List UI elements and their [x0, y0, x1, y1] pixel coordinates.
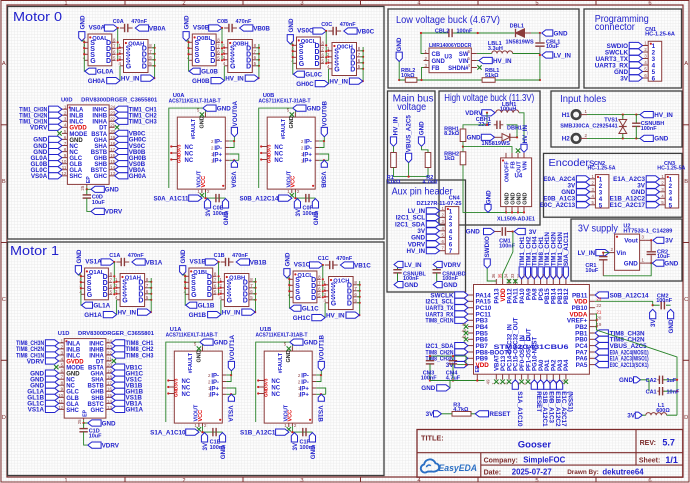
svg-text:DBL1: DBL1 [510, 23, 524, 29]
svg-text:S1A_A1C10: S1A_A1C10 [516, 391, 523, 427]
svg-text:VS0B: VS0B [193, 24, 210, 31]
svg-text:IP+: IP+ [300, 386, 310, 392]
svg-text:H2: H2 [562, 136, 571, 143]
svg-text:100nF: 100nF [210, 445, 227, 451]
svg-text:G: G [87, 292, 93, 299]
svg-text:GND: GND [102, 420, 116, 427]
svg-text:GND: GND [654, 136, 668, 143]
svg-text:#FAULT: #FAULT [281, 118, 287, 139]
svg-text:C1B: C1B [214, 253, 225, 259]
svg-text:GHB: GHB [91, 390, 105, 396]
svg-text:#FAULT: #FAULT [278, 352, 284, 373]
svg-text:dekutree64: dekutree64 [602, 467, 644, 476]
svg-text:voltage: voltage [397, 101, 426, 113]
svg-text:G: G [195, 58, 201, 65]
svg-text:11: 11 [62, 165, 67, 170]
svg-text:25: 25 [80, 185, 85, 190]
svg-text:High voltage buck (11.3V): High voltage buck (11.3V) [444, 92, 534, 104]
svg-text:GH1B: GH1B [189, 312, 207, 319]
svg-text:DT: DT [96, 359, 104, 365]
svg-text:ACS711KEXLT-31AB-T: ACS711KEXLT-31AB-T [169, 99, 221, 105]
svg-text:2: 2 [182, 1, 185, 7]
svg-text:VS1B: VS1B [317, 406, 324, 423]
svg-text:HV_IN: HV_IN [493, 58, 512, 65]
svg-text:Vout: Vout [624, 238, 638, 245]
svg-text:Motor 1: Motor 1 [10, 244, 59, 258]
svg-text:VS0B: VS0B [320, 172, 327, 189]
svg-text:100nF: 100nF [403, 276, 420, 282]
svg-text:E0C_A2C13: E0C_A2C13 [540, 202, 576, 209]
svg-text:INHB: INHB [89, 347, 104, 353]
svg-text:GND: GND [421, 385, 435, 392]
svg-text:S1B_A12C1: S1B_A12C1 [240, 429, 276, 436]
svg-text:GND: GND [199, 116, 205, 128]
svg-text:5: 5 [599, 202, 603, 209]
svg-text:D: D [243, 297, 248, 304]
svg-text:Gooser: Gooser [518, 439, 552, 450]
svg-text:EasyEDA: EasyEDA [439, 463, 478, 473]
svg-text:470nF: 470nF [336, 256, 353, 262]
svg-text:IP-: IP- [301, 380, 309, 386]
svg-text:10uF: 10uF [546, 44, 559, 50]
svg-text:GND: GND [289, 116, 295, 128]
svg-text:GND: GND [76, 249, 83, 263]
svg-text:C1A: C1A [109, 253, 120, 259]
svg-text:5: 5 [535, 1, 538, 7]
svg-text:IP+: IP+ [303, 152, 313, 158]
svg-text:VS0C: VS0C [297, 27, 314, 34]
svg-text:S0A_A1C11: S0A_A1C11 [153, 195, 189, 202]
svg-text:IP-: IP- [304, 139, 312, 145]
svg-text:VCC: VCC [201, 176, 207, 188]
svg-text:ACS711KEXLT-31AB-T: ACS711KEXLT-31AB-T [166, 333, 218, 339]
svg-text:S1A_A1C10: S1A_A1C10 [150, 429, 186, 436]
svg-text:GND: GND [105, 187, 119, 194]
svg-text:VDRV: VDRV [443, 262, 461, 269]
svg-text:VS0A: VS0A [89, 24, 106, 31]
svg-text:GH0A: GH0A [129, 173, 147, 180]
svg-text:GND: GND [486, 190, 493, 204]
svg-text:100nF: 100nF [300, 445, 317, 451]
svg-text:VDRV: VDRV [30, 125, 48, 132]
svg-text:GH1A: GH1A [126, 407, 144, 414]
svg-text:FB: FB [432, 66, 441, 72]
svg-text:U0D: U0D [61, 97, 73, 103]
svg-text:GND: GND [214, 339, 228, 346]
svg-text:3.3uH: 3.3uH [488, 46, 503, 52]
svg-text:GND: GND [288, 18, 295, 32]
svg-text:GHA: GHA [91, 372, 105, 378]
svg-text:E0C_A2C13(SCK1): E0C_A2C13(SCK1) [610, 362, 649, 369]
svg-text:D: D [103, 292, 108, 299]
svg-text:VB1C: VB1C [354, 262, 371, 269]
svg-text:VB1A: VB1A [146, 259, 163, 266]
svg-text:36: 36 [491, 273, 496, 278]
svg-text:10nF: 10nF [667, 389, 680, 395]
svg-text:VS1A: VS1A [227, 406, 234, 423]
svg-text:NC: NC [274, 158, 283, 164]
svg-text:6: 6 [648, 478, 651, 483]
svg-text:connector: connector [595, 21, 635, 33]
svg-text:VB0B: VB0B [253, 25, 270, 32]
svg-text:1N5819WS: 1N5819WS [506, 39, 534, 45]
svg-text:NC: NC [182, 385, 191, 391]
svg-text:D: D [210, 58, 215, 65]
svg-text:10uF: 10uF [585, 268, 598, 274]
svg-text:1: 1 [64, 1, 67, 7]
svg-text:470nF: 470nF [128, 253, 145, 259]
svg-text:HV_IN: HV_IN [121, 75, 140, 82]
svg-text:GND: GND [522, 193, 528, 205]
svg-text:GL1B: GL1B [198, 303, 215, 310]
svg-text:EP: EP [86, 176, 92, 183]
svg-text:D: D [142, 63, 147, 70]
svg-text:LV_IN: LV_IN [578, 250, 596, 257]
svg-text:3: 3 [300, 478, 303, 483]
svg-text:470nF: 470nF [232, 253, 249, 259]
svg-text:10uF: 10uF [89, 434, 102, 440]
svg-text:HV_IN: HV_IN [654, 112, 673, 119]
svg-text:INHB: INHB [92, 114, 107, 120]
svg-text:GL1C: GL1C [302, 306, 319, 313]
svg-text:G: G [230, 63, 236, 70]
svg-text:1/1: 1/1 [665, 455, 678, 465]
svg-text:GND: GND [624, 260, 638, 267]
svg-text:SimpleFOC: SimpleFOC [523, 456, 565, 465]
svg-text:Input holes: Input holes [560, 93, 606, 105]
svg-text:NC: NC [271, 392, 280, 398]
svg-text:D: D [311, 295, 316, 302]
svg-text:Low voltage buck (4.67V): Low voltage buck (4.67V) [396, 14, 500, 26]
svg-text:3V: 3V [665, 238, 674, 245]
svg-text:C0C: C0C [321, 22, 332, 28]
svg-text:33: 33 [510, 273, 515, 278]
svg-text:GND: GND [286, 350, 292, 362]
svg-text:1: 1 [64, 478, 67, 483]
svg-text:NC: NC [185, 145, 194, 151]
svg-text:Drawn By:: Drawn By: [567, 469, 599, 476]
svg-text:VS1A: VS1A [28, 407, 45, 414]
svg-text:GL0C: GL0C [305, 72, 322, 79]
svg-text:IP-: IP- [211, 373, 219, 379]
svg-text:TITLE:: TITLE: [421, 434, 444, 443]
svg-text:10uF: 10uF [657, 254, 670, 260]
svg-text:DZ127R-11-07-25: DZ127R-11-07-25 [417, 201, 462, 207]
svg-text:#FAULT: #FAULT [188, 352, 194, 373]
svg-text:35: 35 [497, 273, 502, 278]
svg-text:GVDD: GVDD [69, 126, 87, 132]
svg-text:3: 3 [300, 1, 303, 7]
svg-text:TIM8_CH3: TIM8_CH3 [126, 352, 154, 359]
svg-text:G: G [299, 61, 305, 68]
svg-text:GND3V3: GND3V3 [177, 144, 182, 163]
svg-text:U1D: U1D [58, 331, 70, 337]
svg-text:NC: NC [185, 151, 194, 157]
svg-text:G: G [126, 63, 132, 70]
svg-text:HV_IN: HV_IN [407, 248, 426, 255]
svg-text:EP: EP [475, 365, 481, 372]
svg-text:S0B_A12C14: S0B_A12C14 [240, 195, 279, 202]
svg-text:VOUT1A: VOUT1A [229, 335, 236, 361]
svg-text:ACS711KEXLT-31AB-T: ACS711KEXLT-31AB-T [259, 99, 311, 105]
svg-text:GLC: GLC [66, 390, 79, 396]
svg-text:D: D [207, 292, 212, 299]
svg-text:6: 6 [652, 76, 656, 83]
svg-text:A: A [2, 61, 6, 67]
svg-text:GND3V3: GND3V3 [264, 378, 269, 397]
svg-text:G: G [331, 300, 337, 307]
svg-text:SWDIO: SWDIO [484, 236, 491, 257]
svg-text:GND: GND [619, 377, 633, 384]
svg-text:GND: GND [196, 350, 202, 362]
svg-text:HV_IN: HV_IN [225, 75, 244, 82]
svg-text:5: 5 [669, 202, 673, 209]
svg-text:100nF: 100nF [303, 211, 320, 217]
svg-text:GH0C: GH0C [296, 81, 314, 88]
svg-text:NC: NC [274, 151, 283, 157]
svg-text:GND: GND [668, 319, 675, 333]
svg-text:VBUS_A2C5: VBUS_A2C5 [406, 115, 413, 153]
svg-text:DRV8300DRGER_C3655801: DRV8300DRGER_C3655801 [78, 331, 155, 337]
svg-text:GLC: GLC [69, 156, 82, 162]
svg-text:VDRV: VDRV [465, 110, 483, 117]
svg-text:3V: 3V [529, 229, 538, 236]
svg-text:25: 25 [77, 419, 82, 424]
svg-text:CB: CB [432, 52, 441, 58]
svg-text:VDRV: VDRV [27, 358, 45, 365]
svg-text:G: G [122, 297, 128, 304]
svg-text:HV_IN: HV_IN [522, 125, 529, 144]
svg-text:GND: GND [467, 135, 481, 142]
svg-text:VS1C: VS1C [294, 261, 311, 268]
svg-text:22: 22 [596, 303, 601, 308]
svg-text:B: B [684, 179, 688, 185]
svg-text:GND3V3: GND3V3 [267, 144, 272, 163]
svg-text:1kΩ: 1kΩ [444, 156, 455, 162]
svg-text:470nF: 470nF [131, 19, 148, 25]
svg-text:IP+: IP+ [303, 159, 313, 165]
svg-text:GND3V3: GND3V3 [174, 378, 179, 397]
svg-text:G: G [227, 297, 233, 304]
svg-text:VB0C: VB0C [357, 28, 374, 35]
svg-text:C0A: C0A [113, 19, 124, 25]
svg-text:GND: GND [466, 229, 480, 236]
svg-text:GL0B: GL0B [201, 69, 218, 76]
svg-text:G: G [90, 58, 96, 65]
svg-text:GND: GND [184, 15, 191, 29]
svg-text:Motor 0: Motor 0 [13, 10, 62, 24]
svg-text:VDRV: VDRV [102, 442, 120, 449]
svg-text:G: G [334, 66, 340, 73]
svg-text:NC: NC [69, 144, 78, 150]
svg-text:VS0A: VS0A [230, 172, 237, 189]
svg-text:NC: NC [271, 379, 280, 385]
svg-text:GL0A: GL0A [97, 69, 114, 76]
svg-text:INLB: INLB [69, 114, 84, 120]
svg-text:GND: GND [419, 121, 426, 135]
svg-text:470nF: 470nF [236, 19, 253, 25]
svg-text:100nF: 100nF [641, 126, 658, 132]
svg-text:U3: U3 [444, 54, 452, 60]
svg-text:HC-1.25-6A: HC-1.25-6A [645, 32, 675, 38]
svg-text:470nF: 470nF [340, 22, 357, 28]
svg-text:10kΩ: 10kΩ [401, 73, 415, 79]
svg-text:NC: NC [182, 392, 191, 398]
svg-text:(NSS1): (NSS1) [567, 391, 574, 412]
svg-text:3V: 3V [650, 318, 657, 327]
svg-text:GH0B: GH0B [192, 78, 210, 85]
svg-text:GVDD: GVDD [66, 359, 84, 365]
svg-text:GND: GND [307, 105, 321, 112]
svg-text:HC-1.25-5A: HC-1.25-5A [588, 166, 616, 172]
svg-text:INLB: INLB [66, 347, 81, 353]
svg-text:B: B [2, 179, 6, 185]
svg-text:IP-: IP- [214, 139, 222, 145]
svg-text:GND: GND [79, 15, 86, 29]
svg-text:C1C: C1C [318, 256, 329, 262]
svg-text:G: G [295, 295, 301, 302]
svg-text:IP+: IP+ [213, 152, 223, 158]
svg-text:HV_IN: HV_IN [393, 116, 400, 135]
svg-text:D: D [2, 415, 6, 421]
svg-text:100nF: 100nF [457, 28, 474, 34]
svg-text:TIM8_CH1N: TIM8_CH1N [426, 318, 454, 325]
svg-text:GH1A: GH1A [84, 312, 102, 319]
svg-text:6: 6 [648, 1, 651, 7]
svg-text:GND: GND [396, 37, 403, 51]
svg-text:S1B_A12C1: S1B_A12C1 [541, 391, 548, 427]
svg-text:3V: 3V [202, 442, 209, 451]
svg-text:VS0A: VS0A [31, 173, 48, 180]
svg-text:IP+: IP+ [213, 159, 223, 165]
svg-text:100nF: 100nF [442, 276, 459, 282]
svg-text:GND: GND [664, 261, 678, 268]
svg-text:HT7533-1_C14289: HT7533-1_C14289 [623, 228, 672, 234]
svg-text:A: A [684, 61, 688, 67]
svg-text:VOUT0B: VOUT0B [322, 101, 329, 127]
svg-text:NC: NC [66, 384, 75, 390]
svg-text:100nF: 100nF [213, 211, 230, 217]
svg-text:DRV8300DRGER_C3655801: DRV8300DRGER_C3655801 [81, 97, 158, 103]
svg-text:3V supply: 3V supply [578, 222, 619, 234]
svg-text:S0B_A12C14: S0B_A12C14 [610, 292, 649, 299]
svg-text:IP-: IP- [214, 146, 222, 152]
svg-text:GHB: GHB [94, 156, 108, 162]
svg-text:RESET: RESET [489, 411, 510, 418]
svg-text:D: D [350, 66, 355, 73]
svg-text:GND: GND [180, 249, 187, 263]
svg-text:3V: 3V [295, 208, 302, 217]
svg-text:VS1B: VS1B [190, 258, 207, 265]
svg-text:3V: 3V [627, 413, 636, 420]
svg-text:CA1: CA1 [646, 389, 657, 395]
svg-text:DT: DT [99, 126, 107, 132]
svg-text:11: 11 [59, 399, 64, 404]
svg-text:HC-1.25-5A: HC-1.25-5A [657, 166, 685, 172]
svg-text:IP-: IP- [304, 146, 312, 152]
svg-text:GHA: GHA [94, 138, 108, 144]
svg-text:GND: GND [66, 372, 80, 378]
svg-text:GHC: GHC [91, 408, 105, 414]
svg-text:IP-: IP- [211, 380, 219, 386]
svg-text:VOUT1B: VOUT1B [319, 335, 326, 361]
svg-text:GND: GND [554, 30, 568, 37]
svg-text:D: D [347, 300, 352, 307]
svg-text:HV_IN: HV_IN [222, 309, 241, 316]
svg-text:VIN: VIN [522, 161, 528, 170]
svg-text:GND: GND [304, 339, 318, 346]
svg-text:2025-07-27: 2025-07-27 [512, 468, 552, 477]
svg-text:XL1509-ADJE1: XL1509-ADJE1 [497, 216, 536, 222]
svg-text:PA4: PA4 [563, 359, 570, 371]
svg-text:HV_IN: HV_IN [118, 309, 137, 316]
svg-text:5: 5 [535, 478, 538, 483]
svg-text:VB0A: VB0A [149, 25, 166, 32]
svg-text:REV:: REV: [640, 440, 656, 447]
svg-text:H1: H1 [562, 112, 571, 119]
svg-text:EP: EP [83, 409, 89, 416]
svg-text:GND: GND [217, 105, 231, 112]
svg-text:C: C [684, 297, 688, 303]
svg-text:SHC: SHC [69, 174, 82, 180]
svg-text:GH0A: GH0A [88, 78, 106, 85]
svg-text:GND: GND [69, 138, 83, 144]
svg-text:3V: 3V [426, 411, 435, 418]
svg-text:51kΩ: 51kΩ [485, 73, 499, 79]
svg-text:3V: 3V [205, 208, 212, 217]
svg-text:BSTC: BSTC [91, 168, 108, 174]
svg-text:E1B_A12C2: E1B_A12C2 [554, 391, 561, 427]
svg-text:VDRV: VDRV [105, 209, 123, 216]
svg-text:10uF: 10uF [92, 200, 105, 206]
svg-text:7: 7 [449, 248, 453, 255]
svg-text:3V: 3V [292, 442, 299, 451]
svg-text:TIM1_CH3: TIM1_CH3 [129, 119, 157, 126]
svg-text:HV_IN: HV_IN [326, 312, 345, 319]
svg-text:100nF: 100nF [656, 298, 673, 304]
svg-text:5.7: 5.7 [662, 438, 675, 448]
svg-text:D: D [138, 297, 143, 304]
svg-text:34: 34 [504, 273, 509, 278]
svg-text:PA5: PA5 [576, 362, 588, 369]
svg-text:VCC: VCC [288, 410, 294, 422]
svg-text:NC: NC [182, 379, 191, 385]
svg-text:IP+: IP+ [210, 393, 220, 399]
svg-text:CA2: CA2 [646, 378, 657, 384]
svg-text:C0B: C0B [217, 19, 228, 25]
svg-text:Company:: Company: [484, 458, 518, 465]
svg-text:IP+: IP+ [210, 386, 220, 392]
svg-text:GND: GND [404, 282, 418, 289]
svg-text:GLA: GLA [69, 168, 82, 174]
svg-text:49: 49 [486, 379, 491, 384]
svg-text:NC: NC [185, 158, 194, 164]
svg-text:GND: GND [284, 252, 291, 266]
svg-text:2: 2 [182, 478, 185, 483]
svg-text:D: D [106, 58, 111, 65]
svg-text:VS1A: VS1A [85, 258, 102, 265]
svg-text:SMBJ30CA_C2925441: SMBJ30CA_C2925441 [560, 124, 618, 130]
svg-text:NC: NC [271, 385, 280, 391]
svg-text:8.2kΩ: 8.2kΩ [444, 131, 460, 137]
svg-text:C: C [2, 297, 6, 303]
svg-text:TVS1: TVS1 [604, 117, 618, 123]
svg-text:CBL2: CBL2 [435, 28, 449, 34]
svg-text:PB12: PB12 [563, 288, 570, 304]
svg-text:1uF: 1uF [667, 378, 677, 384]
svg-text:VB1B: VB1B [250, 259, 267, 266]
svg-text:E1C_A2C17: E1C_A2C17 [610, 202, 646, 209]
